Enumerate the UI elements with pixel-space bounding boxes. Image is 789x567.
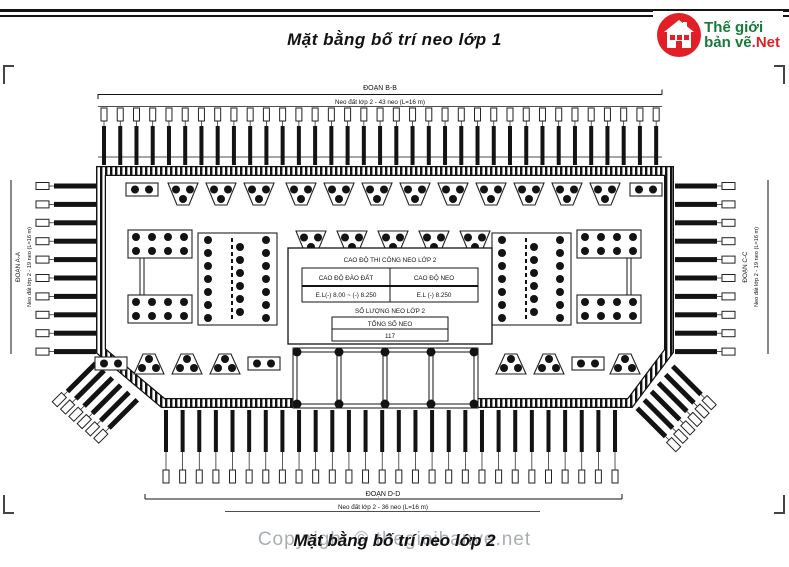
logo-text: Thế giới bản vẽ.Net — [704, 20, 780, 50]
info-table-title: CAO ĐỘ THI CÔNG NEO LỚP 2 — [344, 255, 437, 264]
top-anchor-row — [101, 108, 659, 165]
total-value: 117 — [385, 333, 396, 340]
section-label-right: ĐOẠN C-C — [742, 251, 749, 283]
left-anchor-row — [36, 183, 96, 356]
logo-line2: bản vẽ — [704, 34, 752, 51]
section-note-left: Neo đất lớp 2 - 19 neo (L=16 m) — [27, 227, 33, 307]
col2-header: CAO ĐỘ NEO — [414, 273, 454, 282]
section-note-right: Neo đất lớp 2 - 19 neo (L=16 m) — [754, 227, 760, 307]
section-label-bottom: ĐOẠN D-D — [366, 491, 401, 498]
page-title-bottom: Mặt bằng bố trí neo lớp 2 — [0, 531, 789, 551]
section-note-bottom: Neo đất lớp 2 - 36 neo (L=16 m) — [338, 502, 428, 511]
center-strut-frame — [293, 348, 479, 409]
info-table: CAO ĐỘ THI CÔNG NEO LỚP 2 CAO ĐỘ ĐÀO ĐẤT… — [288, 248, 492, 344]
anchor-layout-drawing: ĐOẠN B-B Neo đất lớp 2 - 43 neo (L=16 m)… — [0, 62, 789, 530]
site-logo[interactable]: Thế giới bản vẽ.Net — [653, 11, 783, 59]
bottom-anchor-row — [163, 410, 618, 483]
col1-value: E.L(-) 8.00 ~ (-) 8.250 — [316, 292, 377, 299]
section-note-top: Neo đất lớp 2 - 43 neo (L=16 m) — [335, 97, 425, 106]
page: { "page": { "title_top": "Mặt bằng bố tr… — [0, 0, 789, 567]
col2-value: E.L (-) 8.250 — [417, 292, 452, 299]
right-anchor-row — [675, 183, 735, 356]
section-label-top: ĐOẠN B-B — [363, 85, 397, 92]
house-icon — [656, 12, 702, 58]
logo-suffix: .Net — [752, 34, 780, 51]
section-label-left: ĐOẠN A-A — [15, 251, 22, 282]
